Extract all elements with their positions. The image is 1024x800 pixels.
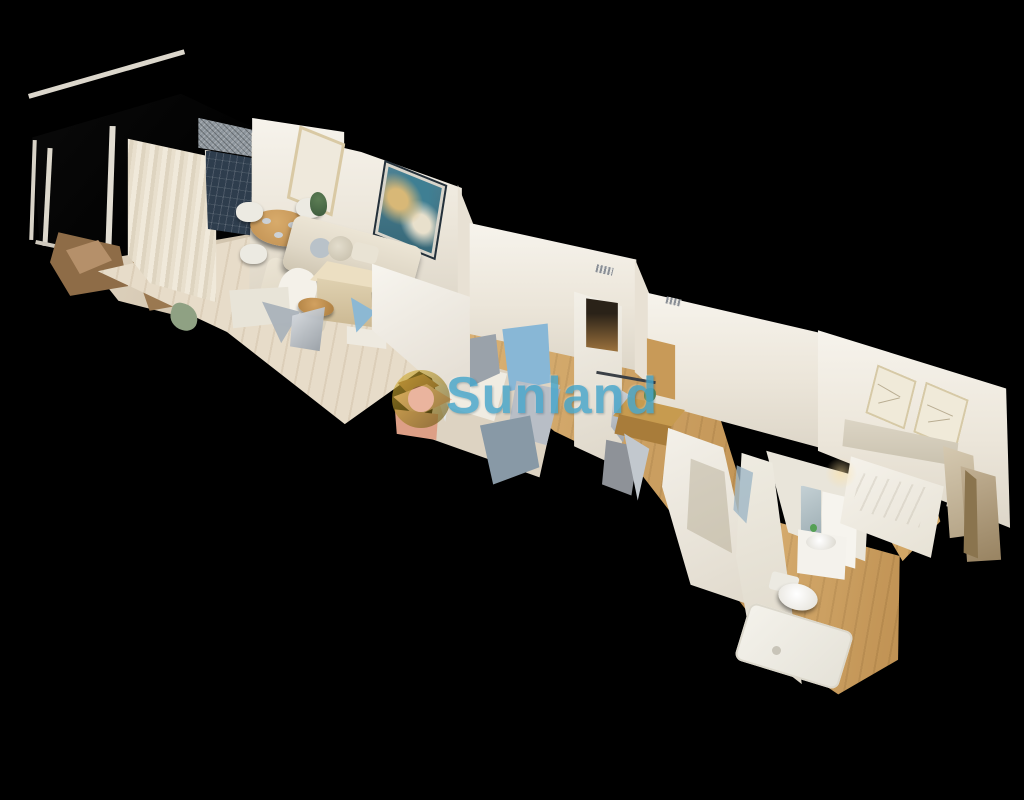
watermark-text: Sunland <box>446 368 658 425</box>
dollhouse-3d-viewport[interactable]: Sunland <box>0 0 1024 800</box>
watermark: Sunland <box>0 0 1024 800</box>
sunland-logo-ring-icon <box>390 368 452 430</box>
